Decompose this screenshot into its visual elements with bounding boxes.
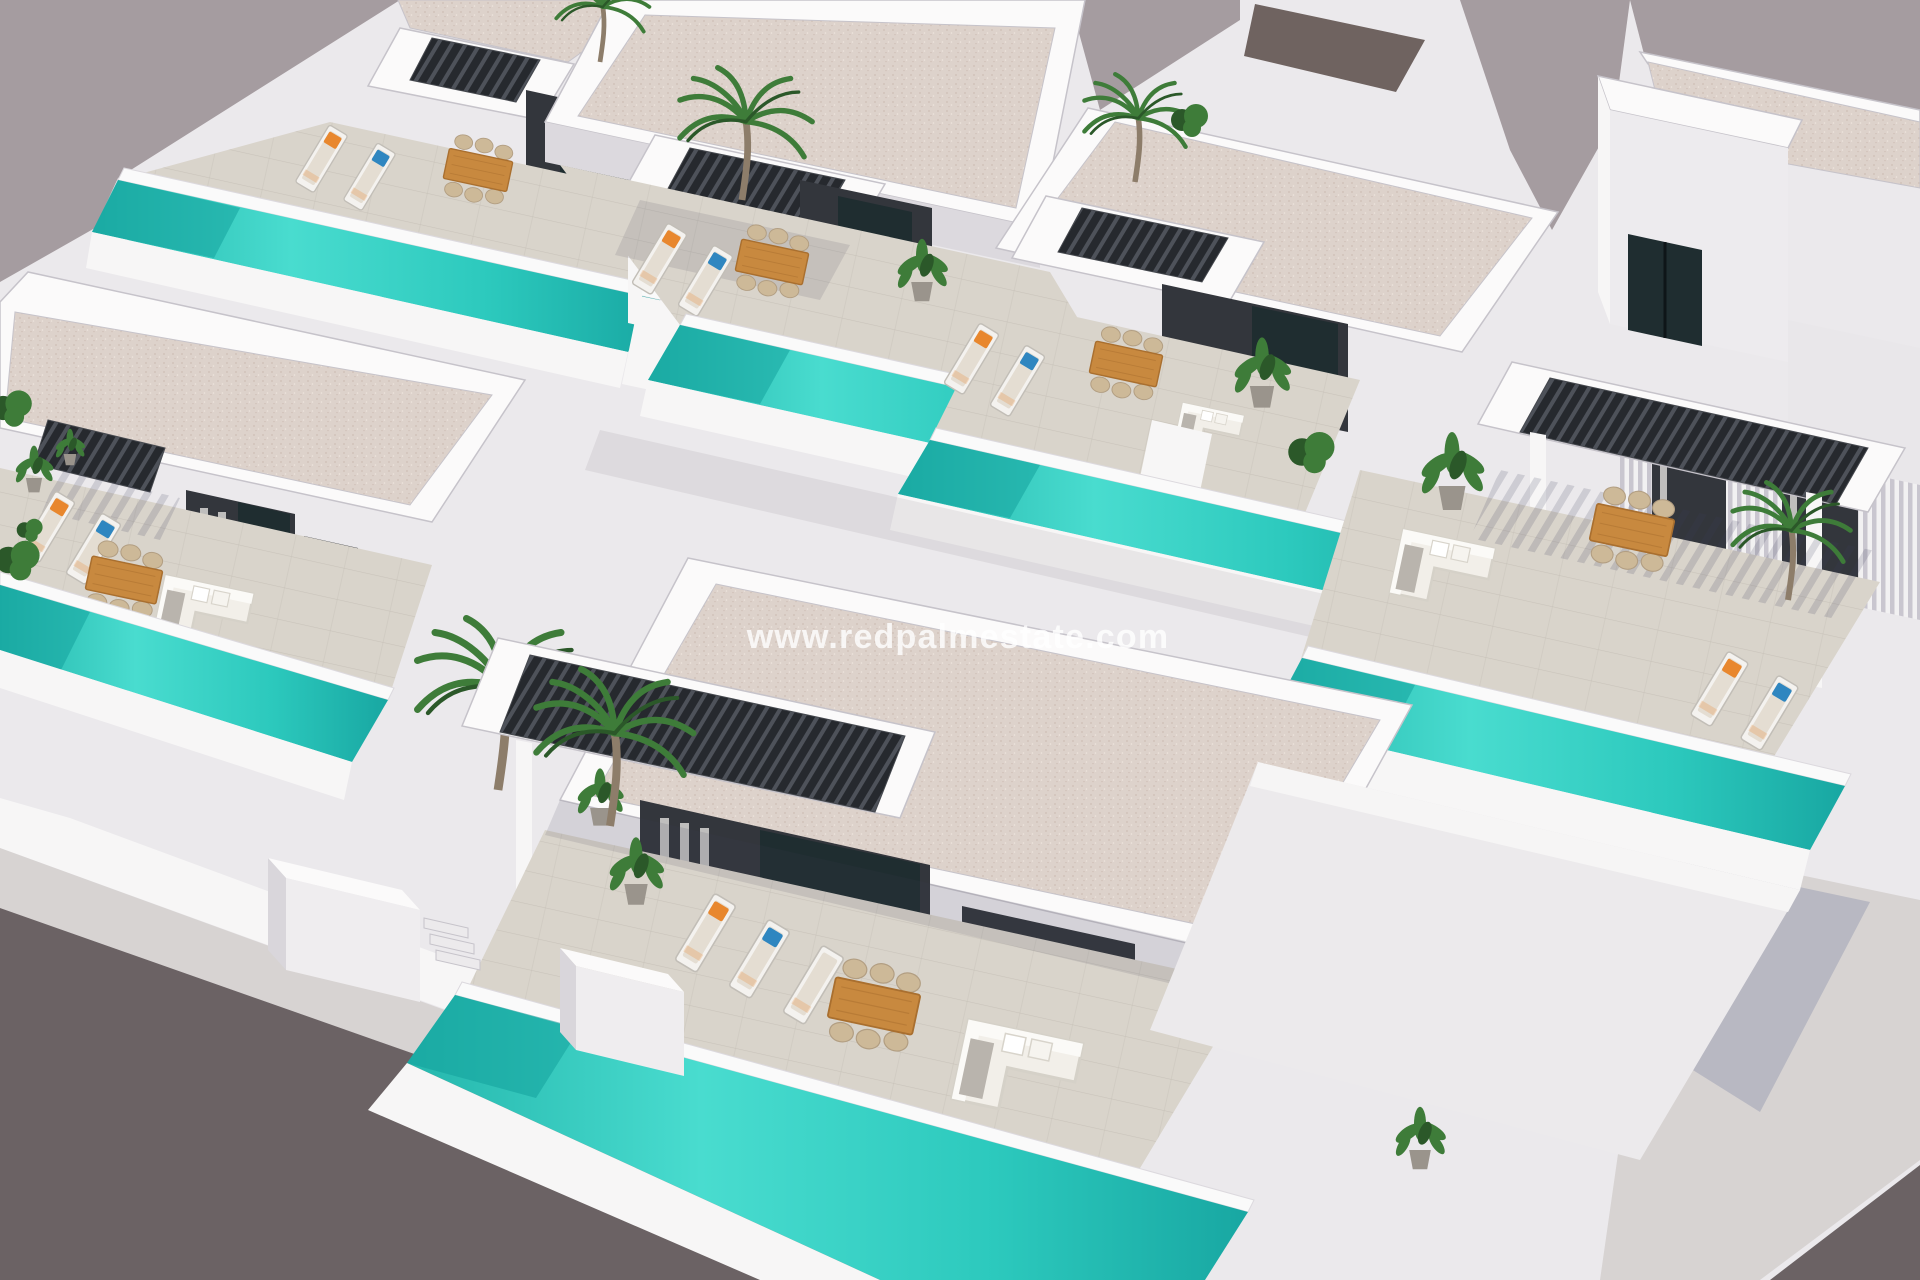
render-stage: www.redpalmestate.com — [0, 0, 1920, 1280]
villa-render-canvas: www.redpalmestate.com — [0, 0, 1920, 1280]
watermark: www.redpalmestate.com — [746, 618, 1170, 656]
gate-box-side — [560, 948, 576, 1050]
tower-side — [1598, 76, 1610, 324]
